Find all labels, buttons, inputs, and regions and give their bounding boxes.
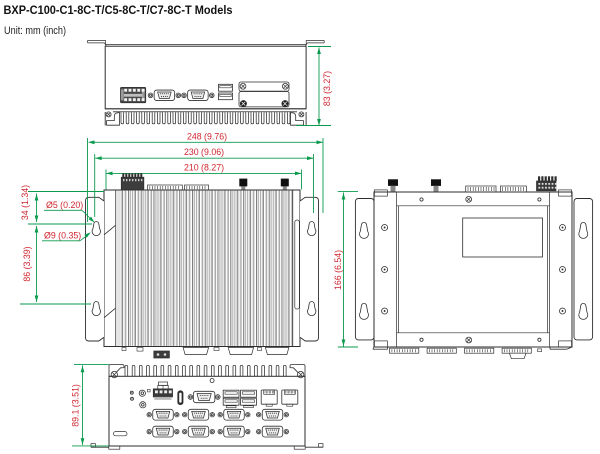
svg-text:166 (6.54): 166 (6.54) — [333, 250, 343, 290]
svg-text:Unit: mm (inch): Unit: mm (inch) — [4, 25, 66, 37]
svg-text:210 (8.27): 210 (8.27) — [184, 162, 224, 172]
svg-text:230 (9.06): 230 (9.06) — [184, 147, 224, 157]
svg-text:248 (9.76): 248 (9.76) — [187, 131, 227, 141]
svg-text:86 (3.39): 86 (3.39) — [22, 246, 32, 281]
svg-text:89.1 (3.51): 89.1 (3.51) — [71, 384, 81, 427]
svg-text:BXP-C100-C1-8C-T/C5-8C-T/C7-8C: BXP-C100-C1-8C-T/C5-8C-T/C7-8C-T Models — [4, 3, 233, 17]
svg-text:83 (3.27): 83 (3.27) — [322, 71, 332, 106]
svg-text:Ø5 (0.20): Ø5 (0.20) — [46, 200, 83, 210]
svg-text:34 (1.34): 34 (1.34) — [20, 185, 30, 220]
svg-text:Ø9 (0.35): Ø9 (0.35) — [44, 231, 81, 241]
